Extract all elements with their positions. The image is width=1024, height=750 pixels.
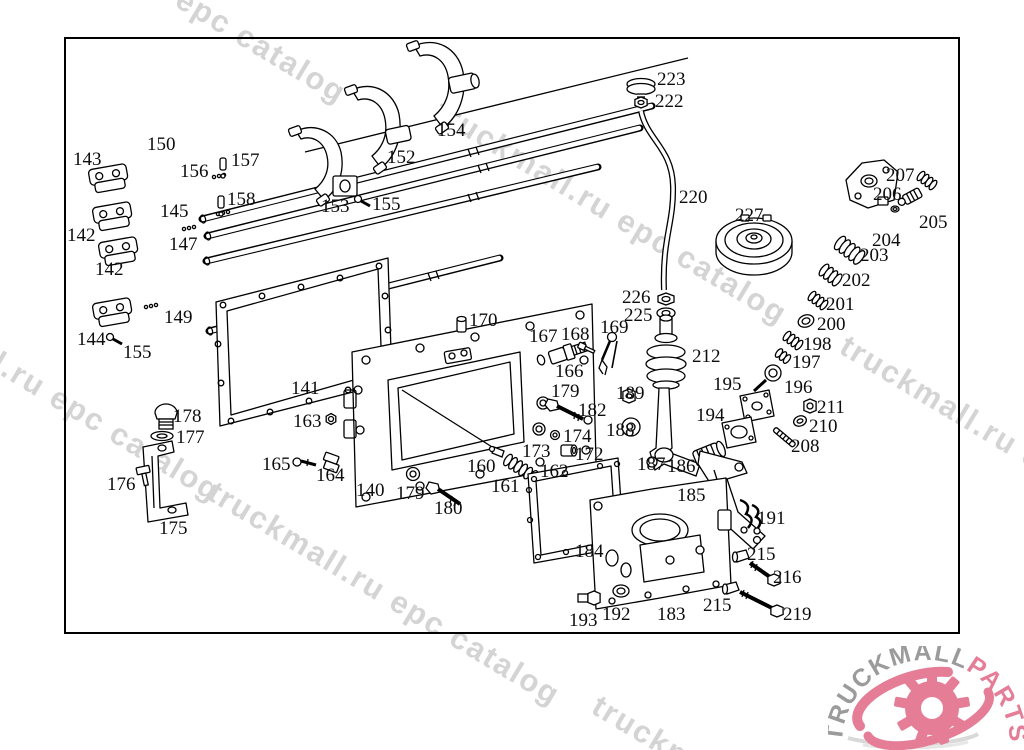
part-label-176: 176 — [107, 475, 136, 494]
ring-173 — [533, 423, 545, 435]
part-label-153: 153 — [321, 197, 350, 216]
part-label-215: 215 — [747, 545, 776, 564]
bracket-175 — [143, 441, 188, 522]
plate-195 — [740, 390, 774, 422]
part-label-161: 161 — [491, 477, 520, 496]
part-label-194: 194 — [696, 406, 725, 425]
tube-220 — [641, 111, 673, 290]
plug-170 — [457, 317, 466, 333]
part-label-223: 223 — [657, 70, 686, 89]
part-label-142: 142 — [67, 226, 96, 245]
part-label-145: 145 — [160, 202, 189, 221]
diagram-canvas — [0, 0, 1024, 750]
part-label-196: 196 — [784, 378, 813, 397]
ring-179b — [407, 468, 420, 481]
part-label-188: 188 — [606, 421, 635, 440]
part-label-222: 222 — [655, 92, 684, 111]
part-label-205: 205 — [919, 213, 948, 232]
part-label-155: 155 — [123, 343, 152, 362]
part-label-185: 185 — [677, 486, 706, 505]
bolt-219 — [740, 590, 783, 617]
part-label-219: 219 — [783, 605, 812, 624]
part-label-179: 179 — [551, 382, 580, 401]
part-label-192: 192 — [602, 605, 631, 624]
part-label-225: 225 — [624, 306, 653, 325]
part-label-204: 204 — [872, 231, 901, 250]
part-label-215: 215 — [703, 596, 732, 615]
part-label-178: 178 — [173, 407, 202, 426]
spring-207 — [916, 170, 939, 191]
part-label-191: 191 — [757, 509, 786, 528]
spring-202 — [817, 263, 843, 288]
part-label-187: 187 — [637, 455, 666, 474]
part-label-189: 189 — [616, 384, 645, 403]
part-label-182: 182 — [578, 401, 607, 420]
spring-197 — [774, 348, 792, 365]
boot-212 — [646, 315, 686, 389]
part-label-211: 211 — [817, 398, 845, 417]
part-label-168: 168 — [561, 325, 590, 344]
part-label-173: 173 — [522, 442, 551, 461]
part-label-143: 143 — [73, 150, 102, 169]
logo-text-pink: PARTS — [962, 651, 1024, 744]
rod-145 — [205, 128, 640, 240]
part-label-198: 198 — [803, 335, 832, 354]
part-label-207: 207 — [886, 166, 915, 185]
pin-158 — [218, 196, 224, 216]
part-label-158: 158 — [227, 190, 256, 209]
part-label-201: 201 — [826, 295, 855, 314]
part-label-165: 165 — [262, 455, 291, 474]
seal-200 — [796, 313, 815, 330]
part-label-195: 195 — [713, 375, 742, 394]
nut-222 — [635, 97, 647, 108]
screw-165 — [293, 458, 316, 466]
part-label-147: 147 — [169, 235, 198, 254]
clamp-144 — [92, 297, 134, 327]
main-rail-line — [305, 58, 688, 152]
screw-155-left — [107, 334, 123, 345]
part-label-208: 208 — [791, 437, 820, 456]
spring-198 — [782, 330, 805, 351]
part-label-180: 180 — [434, 499, 463, 518]
nut-226 — [658, 293, 674, 305]
part-label-157: 157 — [231, 151, 260, 170]
part-label-200: 200 — [817, 315, 846, 334]
part-label-164: 164 — [316, 466, 345, 485]
plate-194 — [722, 417, 756, 448]
washer-210 — [792, 414, 808, 428]
part-label-206: 206 — [873, 185, 902, 204]
nut-163 — [326, 414, 336, 425]
part-label-155: 155 — [372, 195, 401, 214]
part-label-177: 177 — [176, 428, 205, 447]
part-label-144: 144 — [77, 330, 106, 349]
part-label-141: 141 — [291, 379, 320, 398]
part-label-154: 154 — [437, 121, 466, 140]
part-label-160: 160 — [467, 457, 496, 476]
housing-183 — [590, 478, 731, 609]
part-label-152: 152 — [387, 148, 416, 167]
washer-177 — [151, 432, 173, 441]
part-label-193: 193 — [569, 611, 598, 630]
part-label-227: 227 — [735, 206, 764, 225]
part-label-183: 183 — [657, 605, 686, 624]
part-label-212: 212 — [692, 347, 721, 366]
part-label-166: 166 — [555, 362, 584, 381]
rod-147 — [182, 167, 598, 265]
part-label-167: 167 — [529, 327, 558, 346]
part-label-197: 197 — [792, 353, 821, 372]
washer-215b — [723, 582, 740, 594]
part-label-210: 210 — [809, 417, 838, 436]
part-label-172: 172 — [575, 445, 604, 464]
part-label-184: 184 — [575, 542, 604, 561]
part-label-175: 175 — [159, 519, 188, 538]
part-label-170: 170 — [469, 311, 498, 330]
eye-pin-196 — [754, 365, 781, 391]
truckmall-logo: TRUCKMALLPARTS — [828, 646, 1024, 750]
part-label-140: 140 — [356, 481, 385, 500]
part-label-156: 156 — [180, 162, 209, 181]
part-label-202: 202 — [842, 271, 871, 290]
part-label-186: 186 — [667, 457, 696, 476]
part-label-142: 142 — [95, 260, 124, 279]
pin-157 — [220, 158, 226, 178]
plug-193 — [578, 591, 600, 605]
part-label-163: 163 — [293, 412, 322, 431]
seal-206 — [891, 206, 899, 212]
part-label-162: 162 — [540, 462, 569, 481]
part-label-149: 149 — [164, 308, 193, 327]
parts-diagram-page: truckmall.ru epc catalogtruckmall.ru epc… — [0, 0, 1024, 750]
nut-211 — [804, 399, 816, 413]
ring-174 — [551, 431, 560, 440]
part-label-216: 216 — [773, 568, 802, 587]
pin-lever-169 — [599, 333, 617, 376]
part-label-150: 150 — [147, 135, 176, 154]
seal-192 — [613, 585, 629, 597]
clamp-142a — [92, 201, 134, 231]
part-label-220: 220 — [679, 188, 708, 207]
part-label-179: 179 — [396, 484, 425, 503]
